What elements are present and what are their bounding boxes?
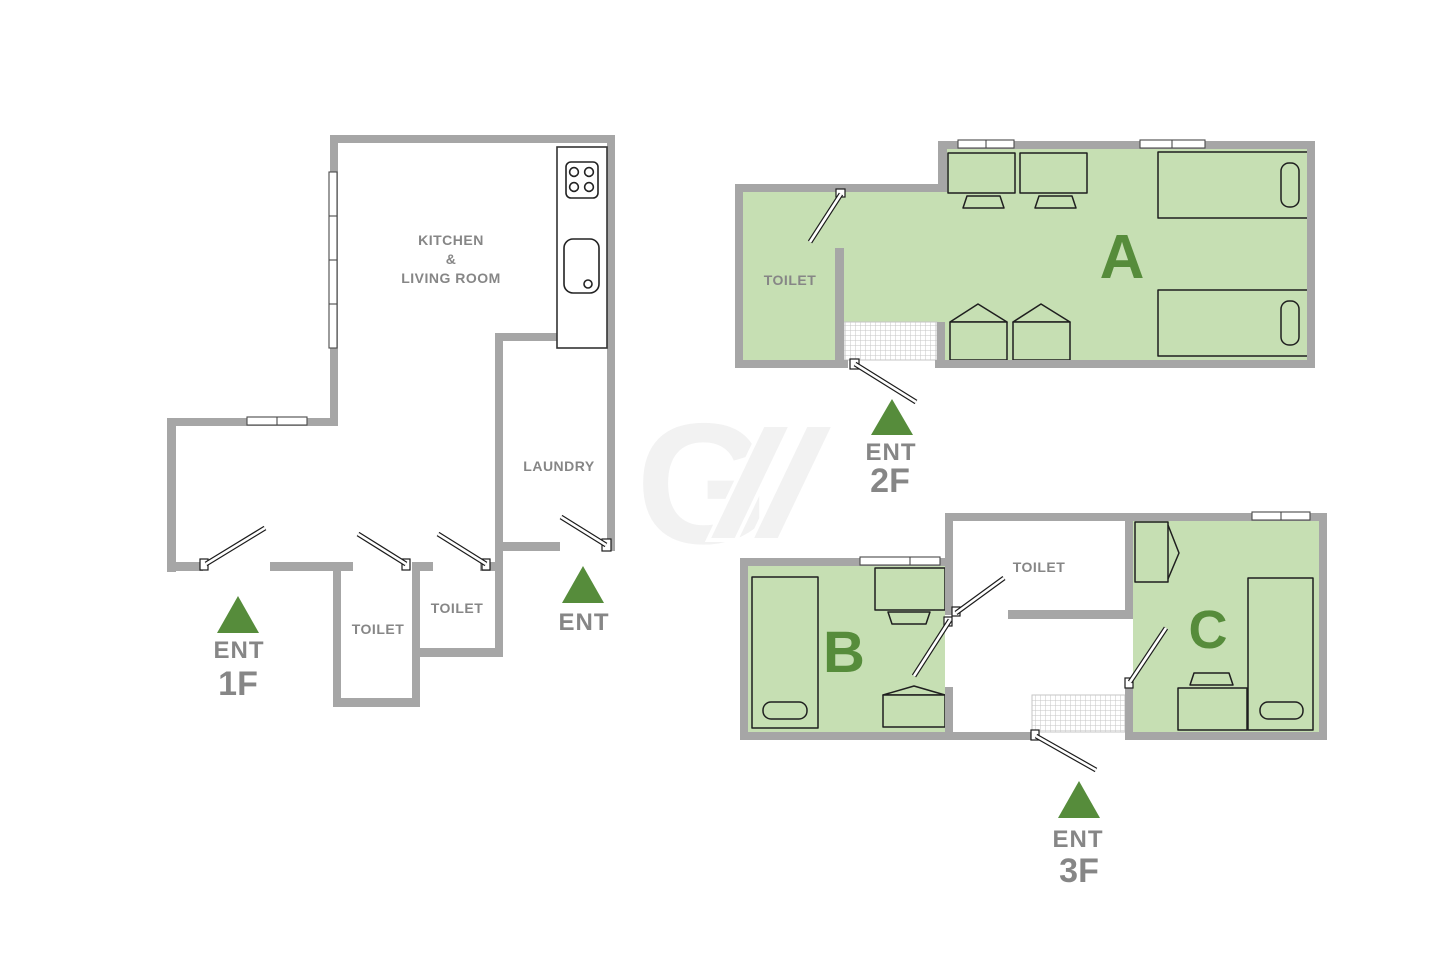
wall [167, 562, 203, 571]
wardrobe [883, 686, 945, 727]
unit-label-b: B [823, 620, 865, 685]
desk [948, 153, 1015, 193]
wall [332, 135, 615, 143]
wall [1125, 521, 1133, 618]
desk [875, 568, 945, 610]
ent-label-1f-front: ENT [214, 637, 265, 664]
wall [412, 562, 433, 571]
wall [735, 184, 743, 368]
floor-label-1f: 1F [218, 665, 258, 703]
toilet-label-3f: TOILET [1013, 559, 1066, 575]
unit-label-c: C [1189, 600, 1228, 660]
stove-icon [566, 162, 598, 198]
chair [1190, 673, 1233, 685]
kitchen-label-line3: LIVING ROOM [401, 270, 501, 286]
chair [963, 196, 1004, 208]
window [1252, 512, 1310, 520]
labels-1f: KITCHEN & LIVING ROOM LAUNDRY TOILET TOI… [214, 232, 610, 703]
ent-label-1f-side: ENT [559, 609, 610, 636]
pillow [1281, 163, 1299, 207]
door-swing [561, 517, 611, 551]
wall [1319, 513, 1327, 740]
bed [1248, 578, 1313, 730]
wall [1307, 141, 1315, 368]
wall [937, 322, 945, 368]
floor-plan-canvas: G [0, 0, 1440, 960]
laundry-label: LAUNDRY [523, 458, 595, 474]
wall [740, 558, 748, 740]
floor-plan-1f: KITCHEN & LIVING ROOM LAUNDRY TOILET TOI… [167, 135, 615, 707]
door-swing [850, 359, 916, 402]
entry-hatch-2f [844, 322, 937, 360]
entrance-arrow-icon [217, 596, 259, 633]
sink-icon [564, 239, 599, 293]
wall [945, 687, 953, 740]
pillow [763, 702, 807, 719]
desk [1020, 153, 1087, 193]
kitchen-label-line2: & [446, 251, 457, 267]
pillow [1281, 301, 1299, 345]
wall [503, 542, 560, 551]
floor-label-2f: 2F [870, 462, 910, 500]
door-swing [952, 578, 1004, 616]
wall [835, 248, 844, 368]
door-swing [200, 528, 265, 570]
windows-1f [247, 172, 337, 425]
window [329, 172, 337, 348]
wall [945, 513, 953, 615]
wall [333, 570, 341, 707]
wall [1125, 687, 1133, 740]
wall [412, 562, 420, 707]
pillow [1260, 702, 1303, 719]
door-swing [1031, 730, 1096, 770]
wall [740, 732, 1032, 740]
unit-label-a: A [1100, 223, 1145, 292]
kitchen-counter [557, 147, 607, 348]
chair [888, 612, 930, 624]
desk [1178, 688, 1247, 730]
window [247, 417, 307, 425]
bed [1158, 152, 1308, 218]
wall [607, 135, 615, 551]
logo-watermark: G [636, 388, 834, 580]
door-swing [438, 534, 490, 570]
toilet-label-1f-b: TOILET [431, 600, 484, 616]
window [1140, 140, 1205, 148]
floor-label-3f: 3F [1059, 852, 1099, 890]
wall [1008, 610, 1133, 619]
window [860, 557, 940, 565]
wall [935, 360, 1315, 368]
ent-label-3f: ENT [1053, 826, 1104, 853]
kitchen-label-line1: KITCHEN [418, 232, 484, 248]
window [958, 140, 1014, 148]
bed [752, 577, 818, 728]
bed [1158, 290, 1308, 356]
door-swing [358, 534, 410, 570]
wall [333, 698, 420, 707]
entrance-arrow-icon [562, 566, 604, 603]
toilet-label-2f: TOILET [764, 272, 817, 288]
floor-plan-3f: TOILET B C ENT 3F [740, 512, 1327, 890]
wall [1125, 732, 1327, 740]
wall [495, 333, 503, 657]
wall [270, 562, 353, 571]
entrance-arrow-icon [1058, 781, 1100, 818]
toilet-label-1f-a: TOILET [352, 621, 405, 637]
chair [1035, 196, 1076, 208]
wall [412, 648, 503, 657]
wall [167, 418, 176, 572]
entrance-arrow-icon [871, 399, 913, 435]
entry-hatch-3f [1032, 695, 1125, 732]
wall [735, 360, 848, 368]
